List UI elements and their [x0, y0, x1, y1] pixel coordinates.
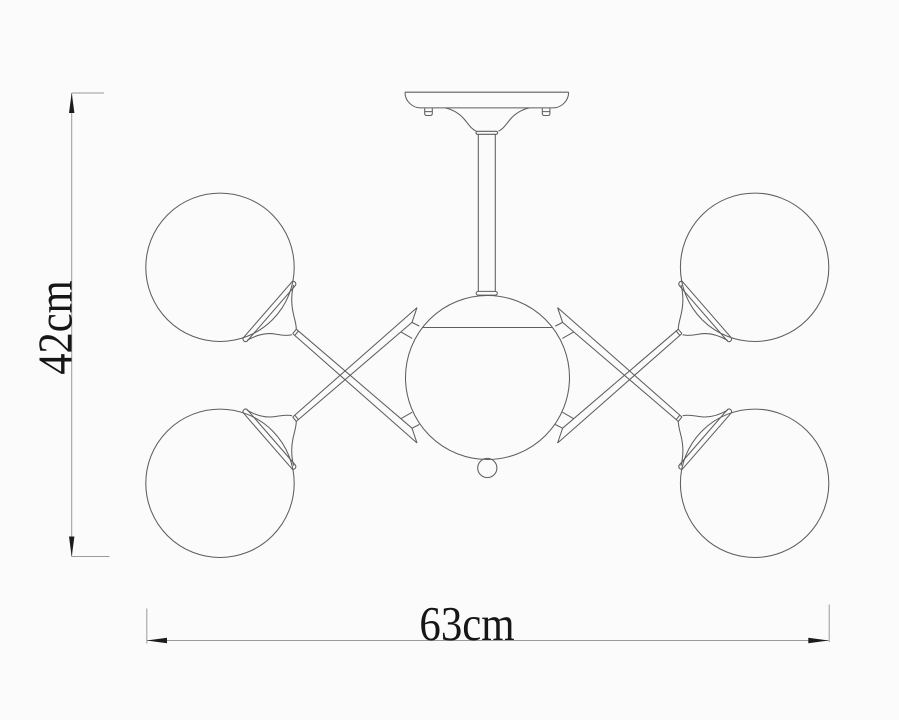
svg-text:63cm: 63cm — [419, 596, 514, 650]
svg-text:42cm: 42cm — [28, 280, 82, 374]
